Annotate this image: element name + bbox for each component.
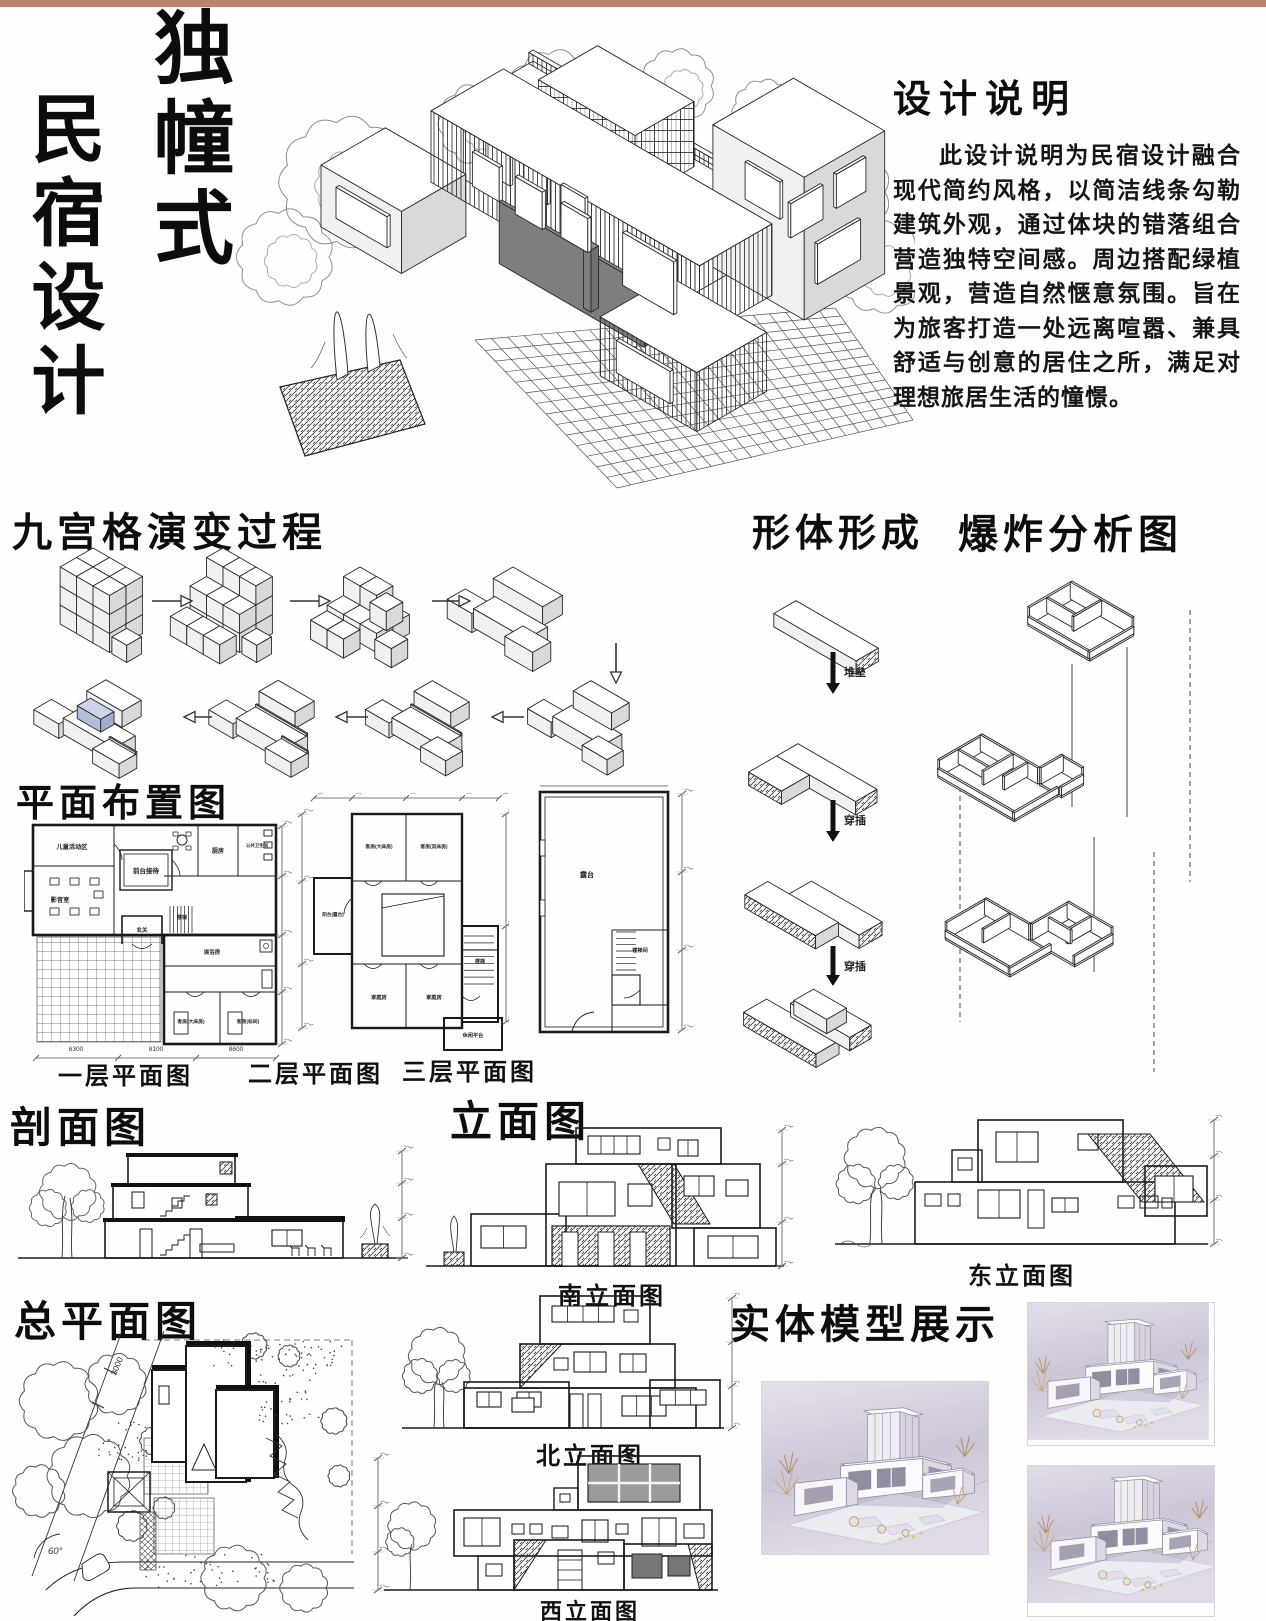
plan1-room-label: 公共卫生间: [246, 842, 269, 849]
plan1-room-label: 儿童活动区: [56, 843, 89, 851]
plan1-dimension: 8600: [229, 1046, 244, 1053]
floor-plan-3: 露台 楼梯间: [512, 780, 704, 1052]
presentation-board: 独幢式 民宿设计 设计说明 此设计说明为民宿设计融合现代简约风格，以简洁线条勾勒…: [0, 0, 1266, 1621]
plan2-room-label: 客房(大床房): [364, 843, 393, 850]
plan2-room-label: 家庭房: [426, 993, 442, 1001]
design-notes-heading: 设计说明: [893, 68, 1241, 123]
main-title-line2: 民宿设计: [24, 90, 98, 510]
heading-form-formation: 形体形成: [752, 502, 924, 557]
plan1-room-label: 淋浴房: [204, 948, 221, 956]
plan1-room-label: 前台接待: [133, 866, 160, 875]
caption-elevation-west: 西立面图: [540, 1594, 640, 1621]
form-step-label-2: 穿插: [844, 813, 866, 827]
nine-grid-diagram: [8, 545, 668, 790]
plan1-room-label: 楼梯: [177, 914, 187, 921]
elevation-south: [416, 1116, 794, 1278]
plan2-room-label: 楼梯: [475, 958, 485, 965]
design-notes-body: 此设计说明为民宿设计融合现代简约风格，以简洁线条勾勒建筑外观，通过体块的错落组合…: [893, 139, 1241, 415]
plan2-room-label: 客房(双床房): [419, 843, 448, 850]
caption-elevation-east: 东立面图: [968, 1256, 1076, 1291]
plan1-room-label: 客房(大床房): [176, 1018, 205, 1025]
floor-plan-1: 儿童活动区 影音室 前台接待 厨房 公共卫生间 玄关 楼梯 淋浴房 客房(大床房…: [24, 816, 292, 1066]
main-perspective-drawing: [225, 42, 915, 492]
plan1-room-label: 玄关: [136, 926, 148, 934]
section-drawing: [10, 1136, 418, 1278]
plan1-room-label: 影音室: [51, 896, 70, 904]
exploded-analysis-diagram: [922, 552, 1264, 1080]
model-photo-3: [1028, 1466, 1214, 1616]
caption-plan-3: 三层平面图: [402, 1052, 537, 1087]
site-dimension: 3000: [109, 1355, 125, 1377]
elevation-west: [366, 1448, 730, 1598]
form-step-label-1: 堆垒: [844, 665, 866, 679]
plan3-room-label: 楼梯间: [632, 946, 648, 954]
site-plan-drawing: 3000 60°: [4, 1326, 368, 1618]
caption-plan-1: 一层平面图: [58, 1056, 193, 1091]
floor-plan-2: 客房(大床房) 客房(双床房) 阳台(露台) 楼梯 家庭房 家庭房 休闲平台: [294, 786, 509, 1052]
model-photo-2: [1028, 1303, 1214, 1445]
elevation-east: [820, 1096, 1222, 1262]
plan2-room-label: 家庭房: [371, 993, 387, 1001]
form-formation-diagram: 堆垒 穿插 穿插: [738, 552, 943, 1082]
site-angle-label: 60°: [48, 1546, 63, 1557]
plan1-dimension: 6300: [69, 1046, 84, 1053]
heading-model-display: 实体模型展示: [730, 1292, 1000, 1350]
plan1-room-label: 厨房: [212, 847, 224, 855]
elevation-north: [392, 1288, 740, 1440]
caption-plan-2: 二层平面图: [248, 1054, 383, 1089]
plan3-room-label: 露台: [580, 870, 594, 879]
plan1-room-label: 客房(标间): [236, 1018, 260, 1025]
form-step-label-3: 穿插: [844, 959, 866, 973]
main-title-line1: 独幢式: [146, 6, 226, 326]
plan2-room-label: 休闲平台: [462, 1031, 484, 1039]
plan1-dimension: 8100: [149, 1046, 164, 1053]
model-photo-1: [762, 1382, 988, 1554]
plan2-room-label: 阳台(露台): [322, 911, 344, 918]
design-notes: 设计说明 此设计说明为民宿设计融合现代简约风格，以简洁线条勾勒建筑外观，通过体块…: [893, 68, 1241, 415]
